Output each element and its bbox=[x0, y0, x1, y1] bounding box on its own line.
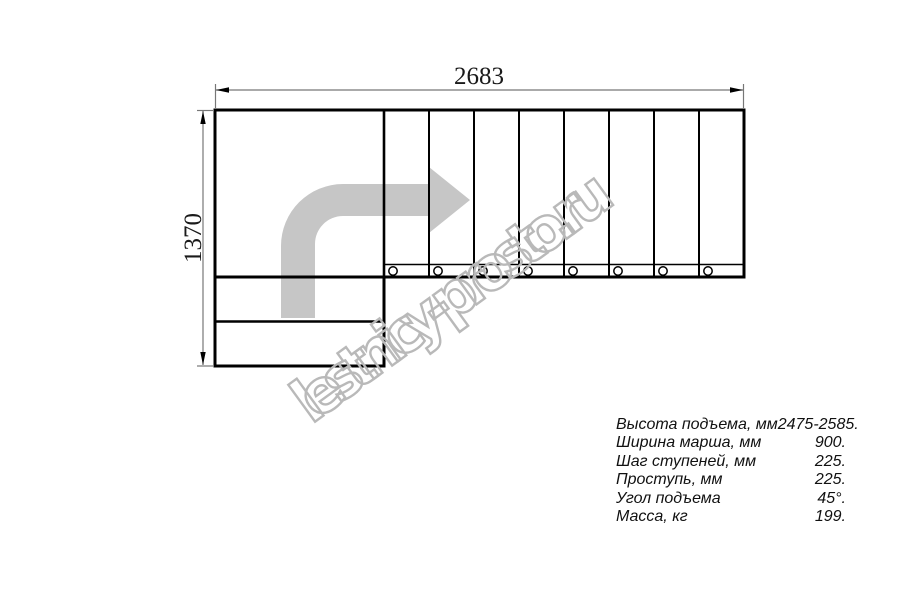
spec-row: Шаг ступеней, мм 225. bbox=[616, 453, 846, 471]
spec-label: Высота подъема, мм bbox=[616, 416, 778, 434]
spec-table: Высота подъема, мм 2475-2585. Ширина мар… bbox=[616, 416, 846, 526]
blueprint-canvas: 2683 1370 lestnicy-prosto.ru Высота подъ… bbox=[0, 0, 900, 600]
spec-value: 199. bbox=[815, 508, 846, 526]
dim-height-value: 1370 bbox=[180, 213, 207, 263]
spec-value: 900. bbox=[815, 434, 846, 452]
dim-width-value: 2683 bbox=[454, 63, 504, 90]
spec-label: Угол подъема bbox=[616, 490, 721, 508]
spec-row: Проступь, мм 225. bbox=[616, 471, 846, 489]
spec-row: Угол подъема 45°. bbox=[616, 490, 846, 508]
tread-dividers bbox=[429, 111, 699, 276]
spec-label: Проступь, мм bbox=[616, 471, 722, 489]
dim-arrowheads bbox=[200, 87, 743, 365]
tread-fasteners bbox=[389, 267, 712, 275]
spec-label: Ширина марша, мм bbox=[616, 434, 761, 452]
direction-arrow bbox=[281, 167, 470, 318]
spec-value: 45°. bbox=[817, 490, 846, 508]
spec-value: 225. bbox=[815, 453, 846, 471]
spec-label: Шаг ступеней, мм bbox=[616, 453, 756, 471]
spec-value: 2475-2585. bbox=[778, 416, 859, 434]
spec-row: Высота подъема, мм 2475-2585. bbox=[616, 416, 846, 434]
spec-value: 225. bbox=[815, 471, 846, 489]
spec-label: Масса, кг bbox=[616, 508, 688, 526]
spec-row: Масса, кг 199. bbox=[616, 508, 846, 526]
spec-row: Ширина марша, мм 900. bbox=[616, 434, 846, 452]
